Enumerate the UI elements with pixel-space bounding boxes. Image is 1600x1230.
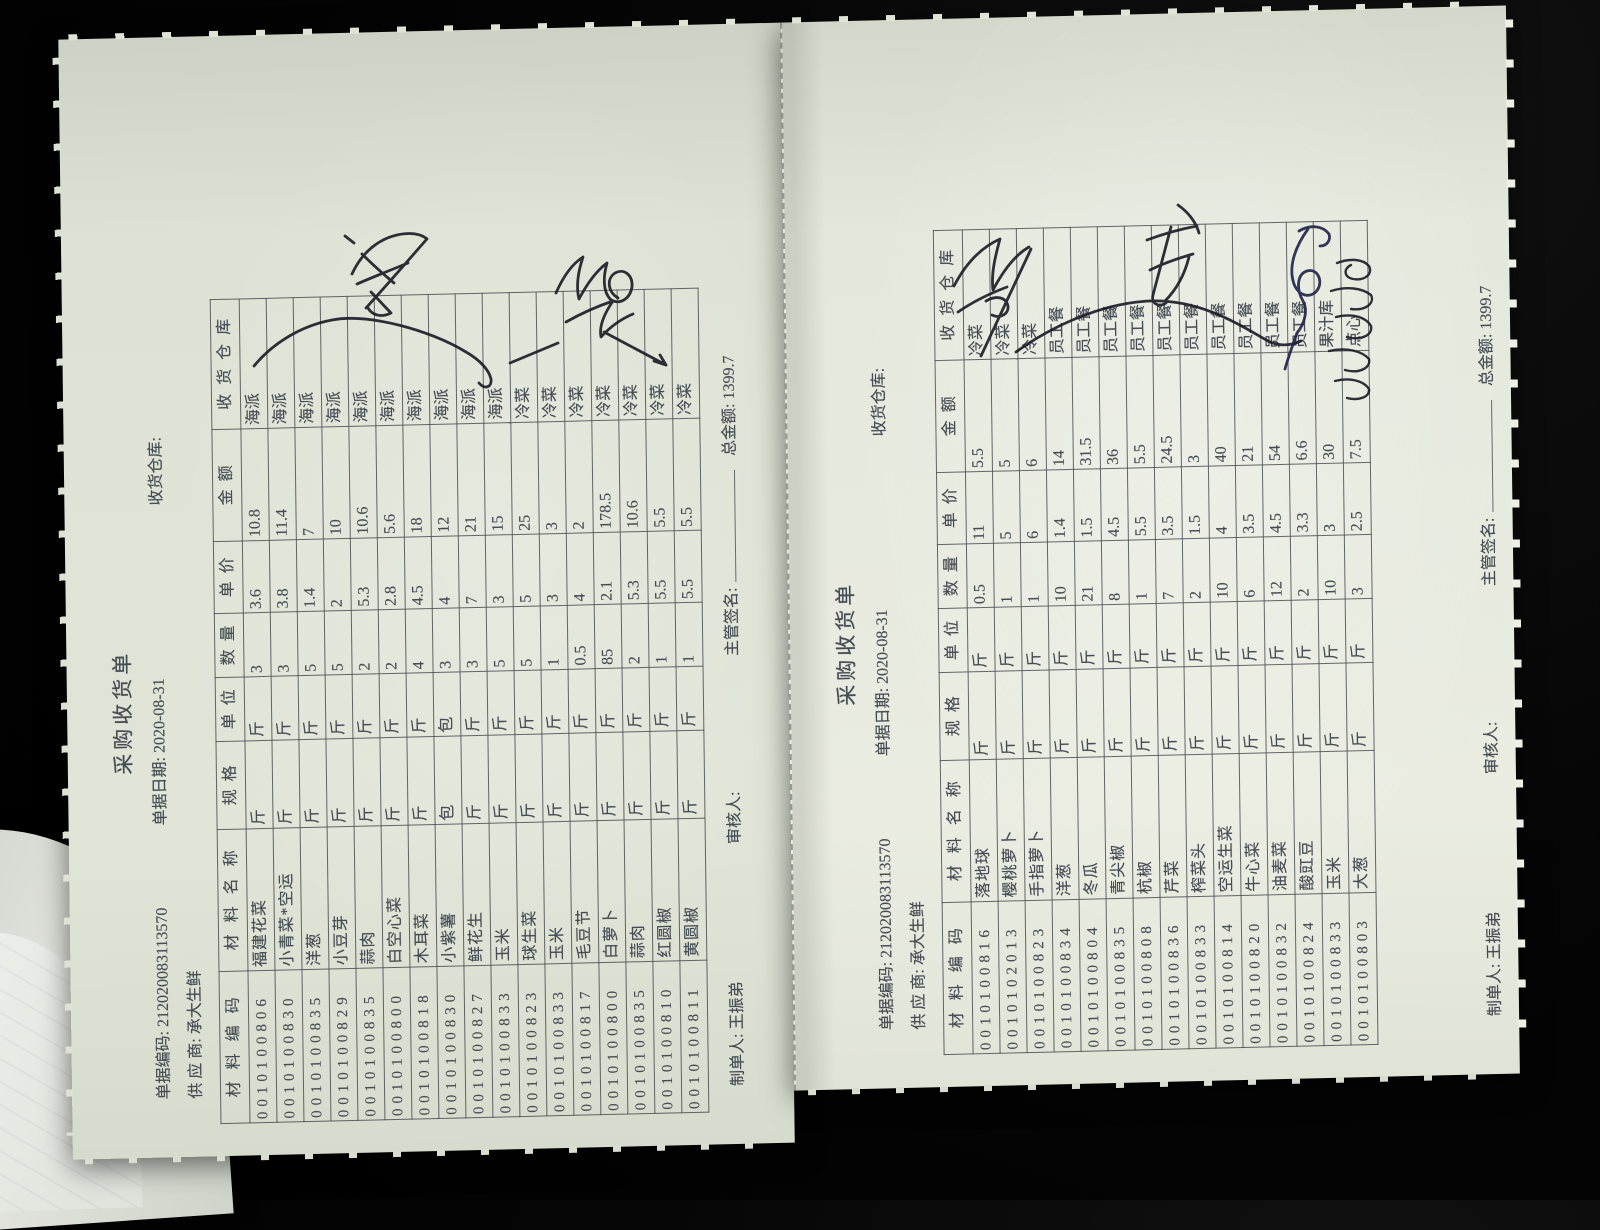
table-cell: 斤 — [245, 740, 273, 829]
table-cell: 斤 — [380, 737, 408, 826]
doc-warehouse: 收货仓库: — [142, 437, 167, 506]
table-cell: 斤 — [299, 739, 327, 828]
table-cell: 0010100810 — [653, 961, 682, 1114]
table-cell: 36 — [1099, 356, 1127, 469]
table-cell: 冷菜 — [989, 229, 1018, 360]
table-cell: 斤 — [325, 674, 353, 739]
table-cell: 斤 — [1265, 664, 1293, 753]
table-cell: 玉米 — [1320, 751, 1349, 894]
table-cell: 斤 — [1345, 598, 1373, 663]
table-cell: 海派 — [266, 298, 295, 429]
maker-field: 制单人: 王振弟 — [1480, 911, 1505, 1016]
table-cell: 31.5 — [1072, 357, 1100, 470]
table-cell: 0010100832 — [1268, 894, 1297, 1047]
table-cell: 斤 — [1102, 604, 1130, 669]
table-cell: 21 — [1074, 541, 1102, 606]
table-cell: 8 — [1101, 540, 1129, 605]
table-cell: 小青菜*空运 — [273, 828, 302, 971]
table-cell: 178.5 — [592, 420, 620, 533]
paper-sheet-left: 采购收货单 单据编码: 212020083113570 单据日期: 2020-0… — [58, 23, 794, 1160]
table-cell: 斤 — [514, 670, 542, 735]
table-cell: 斤 — [1103, 668, 1131, 757]
table-cell: 斤 — [1184, 666, 1212, 755]
table-cell: 斤 — [649, 667, 677, 732]
table-cell: 海派 — [320, 296, 349, 427]
table-cell: 2 — [621, 603, 649, 668]
photo-of-receipts: { "photo": { "background_color": "#00000… — [0, 0, 1600, 1200]
table-cell: 斤 — [541, 669, 569, 734]
table-cell: 员工餐 — [1097, 226, 1126, 357]
table-cell: 4 — [431, 536, 459, 609]
table-cell: 玉米 — [489, 823, 518, 966]
table-cell: 21 — [1234, 353, 1262, 466]
table-cell: 7 — [295, 427, 323, 540]
table-cell: 6 — [1019, 470, 1047, 543]
table-cell: 芹菜 — [1158, 755, 1187, 898]
table-cell: 1 — [1020, 542, 1048, 607]
table-cell: 3.5 — [1154, 467, 1182, 540]
doc-date: 单据日期: 2020-08-31 — [868, 609, 894, 757]
table-cell: 0010100800 — [383, 967, 412, 1120]
paper-spread: 采购收货单 单据编码: 212020083113570 单据日期: 2020-0… — [58, 6, 1520, 1160]
table-cell: 1 — [675, 602, 703, 667]
table-cell: 斤 — [677, 730, 705, 819]
table-cell: 5.5 — [647, 531, 675, 604]
table-cell: 冷菜 — [563, 291, 592, 422]
table-cell: 1.5 — [1073, 469, 1101, 542]
col-header: 收货仓库 — [210, 299, 241, 430]
table-cell: 2.8 — [377, 537, 405, 610]
table-cell: 2 — [378, 609, 406, 674]
table-cell: 员工餐 — [1070, 227, 1099, 358]
table-cell: 斤 — [1292, 664, 1320, 753]
table-cell: 0010100800 — [599, 962, 628, 1115]
table-cell: 斤 — [461, 735, 489, 824]
table-cell: 杭椒 — [1131, 755, 1160, 898]
table-cell: 冷菜 — [671, 288, 700, 419]
table-cell: 0.5 — [966, 543, 994, 608]
col-header: 材料名称 — [940, 760, 971, 903]
table-cell: 30 — [1315, 351, 1343, 464]
table-cell: 0.5 — [567, 605, 595, 670]
col-header: 单价 — [213, 541, 243, 614]
table-cell: 5.3 — [620, 531, 648, 604]
table-cell: 0010100803 — [1349, 892, 1378, 1045]
table-cell: 玉米 — [543, 821, 572, 964]
table-cell: 蒜肉 — [624, 819, 653, 962]
table-cell: 员工餐 — [1151, 225, 1180, 356]
table-cell: 冷菜 — [1016, 228, 1045, 359]
table-cell: 洋葱 — [300, 827, 329, 970]
table-cell: 斤 — [406, 673, 434, 738]
table-cell: 0010100823 — [518, 964, 547, 1117]
table-cell: 斤 — [379, 673, 407, 738]
table-cell: 斤 — [407, 737, 435, 826]
table-cell: 6 — [1236, 537, 1264, 602]
table-cell: 斤 — [271, 676, 299, 741]
col-header: 单价 — [936, 472, 966, 545]
table-cell: 0010100820 — [1241, 895, 1270, 1048]
table-cell: 空运生菜 — [1212, 754, 1241, 897]
col-header: 数量 — [937, 544, 967, 609]
table-cell: 海派 — [455, 293, 484, 424]
table-cell: 21 — [457, 423, 485, 536]
table-cell: 5.5 — [674, 530, 702, 603]
table-cell: 斤 — [1156, 603, 1184, 668]
table-cell: 3 — [243, 612, 271, 677]
table-cell: 12 — [1263, 536, 1291, 601]
table-cell: 0010100816 — [971, 901, 1000, 1054]
table-cell: 斤 — [1130, 667, 1158, 756]
table-cell: 海派 — [428, 294, 457, 425]
table-cell: 1 — [540, 605, 568, 670]
table-cell: 15 — [484, 423, 512, 536]
table-cell: 1.4 — [1046, 469, 1074, 542]
table-cell: 0010100814 — [1214, 896, 1243, 1049]
table-cell: 0010100824 — [1295, 894, 1324, 1047]
sign-field: 主管签名: — [1473, 399, 1499, 586]
maker-field: 制单人: 王振弟 — [723, 981, 748, 1086]
table-cell: 2 — [1290, 536, 1318, 601]
table-cell: 2 — [351, 610, 379, 675]
table-cell: 点心 — [1340, 220, 1369, 351]
table-cell: 24.5 — [1153, 355, 1181, 468]
receipt-document-2: 采购收货单 单据编码: 212020083113570 单据日期: 2020-0… — [782, 6, 1520, 1091]
table-cell: 斤 — [1157, 667, 1185, 756]
table-cell: 25 — [511, 422, 539, 535]
table-cell: 3 — [538, 421, 566, 534]
table-cell: 斤 — [995, 671, 1023, 760]
table-cell: 2.1 — [593, 532, 621, 605]
table-cell: 6 — [1018, 358, 1046, 471]
table-cell: 鲜花生 — [462, 823, 491, 966]
table-cell: 5 — [991, 359, 1019, 472]
table-cell: 斤 — [542, 733, 570, 822]
auditor-field: 审核人: — [720, 791, 745, 844]
table-cell: 1.4 — [296, 539, 324, 612]
table-cell: 斤 — [352, 674, 380, 739]
table-cell: 4.5 — [404, 537, 432, 610]
table-cell: 白空心菜 — [381, 825, 410, 968]
auditor-field: 审核人: — [1477, 721, 1502, 774]
table-cell: 40 — [1207, 354, 1235, 467]
table-cell: 斤 — [244, 676, 272, 741]
table-cell: 3 — [539, 533, 567, 606]
table-cell: 0010100818 — [410, 966, 439, 1119]
table-cell: 7 — [1155, 539, 1183, 604]
table-cell: 0010100835 — [626, 961, 655, 1114]
table-cell: 3.5 — [1235, 465, 1263, 538]
table-cell: 员工餐 — [1205, 224, 1234, 355]
table-cell: 0010100808 — [1133, 897, 1162, 1050]
table-cell: 斤 — [1319, 663, 1347, 752]
table-cell: 12 — [430, 424, 458, 537]
table-cell: 3 — [270, 612, 298, 677]
table-cell: 斤 — [622, 667, 650, 732]
table-cell: 包 — [434, 736, 462, 825]
table-cell: 包 — [433, 672, 461, 737]
table-cell: 员工餐 — [1178, 224, 1207, 355]
col-header: 收货仓库 — [933, 230, 964, 361]
col-header: 材料名称 — [217, 829, 248, 972]
table-cell: 斤 — [623, 731, 651, 820]
table-cell: 3 — [1180, 354, 1208, 467]
table-cell: 斤 — [596, 732, 624, 821]
table-cell: 斤 — [1346, 662, 1374, 751]
table-cell: 54 — [1261, 352, 1289, 465]
table-cell: 5.5 — [964, 359, 992, 472]
table-cell: 员工餐 — [1043, 227, 1072, 358]
receipt-document-1: 采购收货单 单据编码: 212020083113570 单据日期: 2020-0… — [58, 23, 794, 1160]
table-cell: 冷菜 — [617, 289, 646, 420]
signature-line — [1477, 400, 1493, 512]
table-cell: 0010100804 — [1079, 899, 1108, 1052]
table-cell: 海派 — [293, 297, 322, 428]
table-cell: 员工餐 — [1259, 222, 1288, 353]
table-cell: 斤 — [353, 738, 381, 827]
table-cell: 油麦菜 — [1266, 752, 1295, 895]
table-cell: 0010100834 — [1052, 899, 1081, 1052]
table-cell: 洋葱 — [1050, 757, 1079, 900]
total-field: 总金额: 1399.7 — [714, 355, 739, 456]
table-cell: 员工餐 — [1232, 223, 1261, 354]
table-cell: 0010100829 — [329, 968, 358, 1121]
table-cell: 2 — [565, 421, 593, 534]
table-cell: 5 — [297, 611, 325, 676]
table-cell: 10 — [1047, 541, 1075, 606]
table-cell: 2 — [1182, 538, 1210, 603]
table-cell: 0010100833 — [1187, 896, 1216, 1049]
table-cell: 1 — [993, 543, 1021, 608]
table-cell: 3 — [485, 535, 513, 608]
table-cell: 海派 — [401, 295, 430, 426]
table-cell: 斤 — [298, 675, 326, 740]
table-cell: 落地球 — [969, 759, 998, 902]
table-cell: 斤 — [1210, 602, 1238, 667]
table-cell: 斤 — [1129, 603, 1157, 668]
table-cell: 斤 — [994, 607, 1022, 672]
table-cell: 7.5 — [1342, 350, 1370, 463]
table-cell: 5 — [512, 534, 540, 607]
table-cell: 斤 — [967, 607, 995, 672]
table-cell: 10 — [322, 426, 350, 539]
doc-supplier: 供 应 商: 承大生鲜 — [904, 901, 930, 1030]
doc-date: 单据日期: 2020-08-31 — [145, 678, 171, 826]
table-cell: 3 — [1344, 534, 1372, 599]
table-cell: 冷菜 — [590, 290, 619, 421]
table-cell: 0010100835 — [1106, 898, 1135, 1051]
table-cell: 斤 — [272, 740, 300, 829]
receipt-table: 材料编码 材料名称 规格 单位 数量 单价 金额 收货仓库 0010100816… — [933, 220, 1379, 1055]
table-cell: 冷菜 — [644, 289, 673, 420]
table-cell: 蒜肉 — [354, 826, 383, 969]
table-cell: 10 — [1209, 538, 1237, 603]
table-cell: 斤 — [1022, 670, 1050, 759]
col-header: 数量 — [214, 613, 244, 678]
table-cell: 球生菜 — [516, 822, 545, 965]
table-cell: 10.6 — [349, 426, 377, 539]
table-cell: 冷菜 — [962, 229, 991, 360]
doc-no: 单据编码: 212020083113570 — [871, 838, 898, 1030]
table-cell: 2 — [323, 538, 351, 611]
table-cell: 斤 — [460, 671, 488, 736]
table-cell: 海派 — [239, 298, 268, 429]
table-cell: 斤 — [1048, 605, 1076, 670]
table-cell: 5.3 — [350, 538, 378, 611]
col-header: 单位 — [938, 608, 968, 673]
table-cell: 手指萝卜 — [1023, 758, 1052, 901]
receipt-title: 采购收货单 — [102, 296, 143, 1129]
table-cell: 果汁库 — [1313, 221, 1342, 352]
table-cell: 11 — [965, 471, 993, 544]
table-cell: 0010102013 — [998, 901, 1027, 1054]
sign-field: 主管签名: — [716, 469, 742, 656]
table-cell: 榨菜头 — [1185, 754, 1214, 897]
table-cell: 白萝卜 — [597, 820, 626, 963]
table-cell: 员工餐 — [1124, 225, 1153, 356]
table-cell: 10.8 — [241, 428, 269, 541]
table-cell: 4 — [566, 533, 594, 606]
table-cell: 1 — [648, 603, 676, 668]
table-cell: 大葱 — [1347, 750, 1376, 893]
table-cell: 3 — [459, 607, 487, 672]
table-cell: 青尖椒 — [1104, 756, 1133, 899]
table-cell: 斤 — [1264, 600, 1292, 665]
table-cell: 18 — [403, 425, 431, 538]
table-cell: 斤 — [1238, 665, 1266, 754]
table-cell: 4 — [405, 609, 433, 674]
table-cell: 10 — [1317, 535, 1345, 600]
table-cell: 斤 — [1237, 601, 1265, 666]
table-cell: 斤 — [1049, 669, 1077, 758]
table-cell: 斤 — [487, 671, 515, 736]
table-cell: 0010100835 — [302, 969, 331, 1122]
col-header: 材料编码 — [942, 902, 973, 1055]
col-header: 单位 — [215, 677, 245, 742]
table-cell: 毛豆节 — [570, 821, 599, 964]
table-cell: 7 — [458, 535, 486, 608]
table-cell: 5 — [486, 607, 514, 672]
table-cell: 4.5 — [1100, 468, 1128, 541]
doc-no: 单据编码: 212020083113570 — [148, 907, 175, 1099]
table-cell: 0010100823 — [1025, 900, 1054, 1053]
table-cell: 5 — [513, 606, 541, 671]
col-header: 材料编码 — [219, 971, 250, 1124]
table-cell: 5.5 — [1127, 467, 1155, 540]
doc-warehouse: 收货仓库: — [865, 368, 890, 437]
total-field: 总金额: 1399.7 — [1472, 285, 1497, 386]
table-cell: 5 — [992, 471, 1020, 544]
table-cell: 85 — [594, 604, 622, 669]
table-cell: 3.8 — [269, 540, 297, 613]
table-cell: 3.3 — [1289, 464, 1317, 537]
table-cell: 樱桃萝卜 — [996, 759, 1025, 902]
table-cell: 0010100830 — [437, 966, 466, 1119]
table-cell: 3 — [432, 608, 460, 673]
table-cell: 斤 — [1291, 600, 1319, 665]
table-cell: 斤 — [1211, 666, 1239, 755]
table-cell: 5.5 — [673, 418, 701, 531]
table-cell: 1 — [1128, 539, 1156, 604]
table-cell: 2.5 — [1343, 462, 1371, 535]
table-cell: 黄圆椒 — [678, 818, 707, 961]
table-cell: 冬瓜 — [1077, 757, 1106, 900]
table-cell: 斤 — [1075, 605, 1103, 670]
col-header: 规格 — [939, 672, 969, 761]
paper-sheet-right: 采购收货单 单据编码: 212020083113570 单据日期: 2020-0… — [780, 6, 1520, 1091]
table-cell: 斤 — [1318, 599, 1346, 664]
table-cell: 0010100811 — [680, 960, 709, 1113]
table-cell: 红圆椒 — [651, 819, 680, 962]
table-cell: 0010100827 — [464, 965, 493, 1118]
table-cell: 0010100836 — [1160, 897, 1189, 1050]
table-cell: 0010100833 — [491, 965, 520, 1118]
doc-supplier: 供 应 商: 承大生鲜 — [180, 970, 206, 1099]
table-cell: 小豆芽 — [327, 826, 356, 969]
table-cell: 冷菜 — [536, 291, 565, 422]
table-cell: 海派 — [374, 295, 403, 426]
table-cell: 0010100835 — [356, 968, 385, 1121]
table-cell: 10.6 — [619, 419, 647, 532]
table-cell: 11.4 — [268, 428, 296, 541]
table-cell: 斤 — [968, 671, 996, 760]
receipt-table: 材料编码 材料名称 规格 单位 数量 单价 金额 收货仓库 0010100806… — [210, 288, 710, 1124]
table-cell: 5 — [324, 610, 352, 675]
table-cell: 斤 — [569, 733, 597, 822]
table-cell: 斤 — [1076, 669, 1104, 758]
table-cell: 3 — [1316, 463, 1344, 536]
table-cell: 小紫薯 — [435, 824, 464, 967]
table-cell: 3.6 — [242, 540, 270, 613]
table-cell: 斤 — [488, 735, 516, 824]
table-cell: 冷菜 — [509, 292, 538, 423]
table-cell: 0010100817 — [572, 963, 601, 1116]
table-cell: 4.5 — [1262, 464, 1290, 537]
table-cell: 斤 — [515, 734, 543, 823]
table-cell: 酸豇豆 — [1293, 752, 1322, 895]
table-cell: 海派 — [482, 293, 511, 424]
table-cell: 4 — [1208, 466, 1236, 539]
table-cell: 1.5 — [1181, 466, 1209, 539]
table-cell: 斤 — [1021, 606, 1049, 671]
signature-line — [720, 469, 736, 581]
table-cell: 5.5 — [646, 419, 674, 532]
table-cell: 0010100833 — [1322, 893, 1351, 1046]
table-cell: 斤 — [1183, 602, 1211, 667]
col-header: 规格 — [216, 741, 246, 830]
table-cell: 木耳菜 — [408, 825, 437, 968]
table-cell: 5.5 — [1126, 355, 1154, 468]
table-cell: 斤 — [650, 731, 678, 820]
table-cell: 海派 — [347, 296, 376, 427]
table-cell: 斤 — [676, 666, 704, 731]
table-cell: 14 — [1045, 357, 1073, 470]
table-cell: 牛心菜 — [1239, 753, 1268, 896]
table-cell: 员工餐 — [1286, 222, 1315, 353]
table-cell: 5.6 — [376, 425, 404, 538]
col-header: 金额 — [212, 429, 242, 542]
receipt-title: 采购收货单 — [825, 227, 866, 1060]
table-cell: 福建花菜 — [246, 828, 275, 971]
table-cell: 0010100806 — [248, 970, 277, 1123]
table-cell: 斤 — [326, 738, 354, 827]
table-cell: 6.6 — [1288, 352, 1316, 465]
table-cell: 斤 — [568, 669, 596, 734]
table-cell: 斤 — [595, 668, 623, 733]
table-cell: 0010100830 — [275, 970, 304, 1123]
col-header: 金额 — [935, 360, 965, 473]
table-cell: 0010100833 — [545, 963, 574, 1116]
